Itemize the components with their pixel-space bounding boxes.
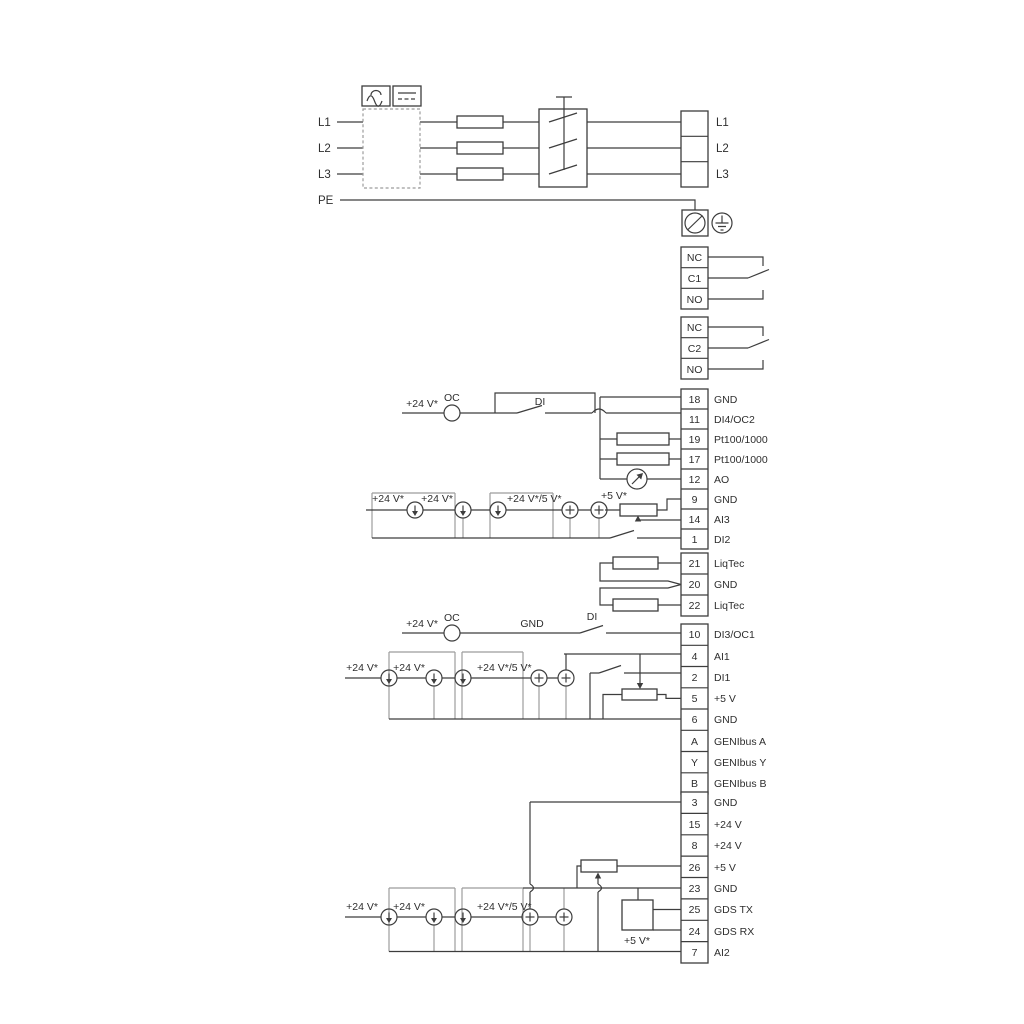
v24-v5-label: +24 V*/5 V* [477,662,532,674]
terminal-no: 26 [689,862,701,874]
terminal-no: 1 [692,534,698,546]
terminal-label: GENIbus A [714,736,766,748]
terminal-label: +24 V [714,819,742,831]
terminal-no: 7 [692,947,698,959]
terminal-no: 10 [689,629,701,641]
terminal-no: 12 [689,474,701,486]
oc-label: OC [444,612,460,624]
oc-terminal-icon [444,625,460,641]
fuse-l3 [457,168,503,180]
relay2-changeover-contact [748,340,769,349]
power-input-label-l3: L3 [318,169,331,181]
ai2-potentiometer [581,860,617,872]
group3-wiring: +24 V* OC GND DI +24 V* +24 V* +24 V*/5 … [345,611,681,719]
terminal-label: LiqTec [714,600,744,612]
terminal-no: 9 [692,494,698,506]
terminal-label: GND [714,714,738,726]
relay2-c2: C2 [688,343,702,355]
di1-switch-contact [599,666,621,674]
power-output-label-l1: L1 [716,117,729,129]
terminal-no: 15 [689,819,701,831]
v24-label: +24 V* [406,398,438,410]
group3-wires [345,633,681,719]
power-terminal-block [681,111,708,187]
terminal-no: 20 [689,579,701,591]
terminal-label: AI2 [714,947,730,959]
power-wires [337,122,695,210]
di3-switch-contact [580,626,603,634]
terminal-no: 4 [692,651,698,663]
relay2-no: NO [687,364,703,376]
v5-label: +5 V* [624,935,650,947]
terminal-label: AI1 [714,651,730,663]
terminal-label: +5 V [714,862,736,874]
terminal-label: DI3/OC1 [714,629,755,641]
terminal-label: GENIbus Y [714,757,766,769]
v24-label: +24 V* [372,493,404,505]
terminal-label: GND [714,797,738,809]
terminal-label: +5 V [714,693,736,705]
rcd-ac-icon [362,86,390,106]
terminal-label: +24 V [714,840,742,852]
terminal-label: Pt100/1000 [714,454,768,466]
v24-v5-label: +24 V*/5 V* [477,901,532,913]
signal-source-icon [556,909,572,925]
terminal-no: 2 [692,672,698,684]
terminal-label: DI2 [714,534,731,546]
v24-label: +24 V* [406,618,438,630]
terminal-no: 24 [689,926,701,938]
power-output-label-l2: L2 [716,143,729,155]
relay-2: NC C2 NO [681,317,769,379]
ai1-potentiometer [622,689,657,700]
liqtec-sensor-1 [613,557,658,569]
wiring-diagram-page: L1 L2 L3 PE L1 L2 L3 NC C1 NO [0,0,1024,1024]
terminal-label: GND [714,494,738,506]
rcd-dc-icon [393,86,421,106]
terminal-no: 5 [692,693,698,705]
terminal-group-2: 21 20 22 LiqTec GND LiqTec [600,553,744,616]
oc-label: OC [444,392,460,404]
v24-label: +24 V* [393,662,425,674]
terminal-no: 6 [692,714,698,726]
power-input-label-l1: L1 [318,117,331,129]
current-source-icon [426,909,442,925]
pt100-sensor-1 [617,433,669,445]
terminal-no: 17 [689,454,701,466]
terminal-no: 11 [689,414,700,426]
v5-label: +5 V* [601,490,627,502]
terminal-no: 23 [689,883,701,895]
current-source-icon [455,670,471,686]
terminal-label: GDS RX [714,926,754,938]
pt100-sensor-2 [617,453,669,465]
terminal-label: Pt100/1000 [714,434,768,446]
power-input-label-pe: PE [318,195,334,207]
relay1-nc: NC [687,252,703,264]
current-source-icon [490,502,506,518]
terminal-no: 18 [689,394,701,406]
v24-label: +24 V* [393,901,425,913]
current-source-icon [455,909,471,925]
ai1-pot-wiper-arrow [637,683,643,689]
current-source-icon [426,670,442,686]
terminal-label: AO [714,474,729,486]
signal-source-icon [562,502,578,518]
power-input-label-l2: L2 [318,143,331,155]
di2-switch-contact [610,531,634,539]
v24-v5-label: +24 V*/5 V* [507,493,562,505]
relay1-no: NO [687,294,703,306]
terminal-no: 14 [689,514,701,526]
terminal-no: 19 [689,434,701,446]
terminal-no: A [691,736,698,748]
terminal-no: B [691,778,698,790]
di-label: DI [535,396,546,408]
liqtec-sensor-2 [613,599,658,611]
terminal-label: AI3 [714,514,730,526]
terminal-label: LiqTec [714,558,744,570]
relay-1: NC C1 NO [681,247,769,309]
terminal-group-1: 18 11 19 17 12 9 14 1 GND DI4/OC2 Pt100/… [681,389,768,549]
signal-source-icon [591,502,607,518]
terminal-no: 25 [689,904,701,916]
relay2-contact-wires [708,327,763,369]
terminal-label: DI1 [714,672,731,684]
terminal-label: DI4/OC2 [714,414,755,426]
fuse-l2 [457,142,503,154]
v24-label: +24 V* [421,493,453,505]
main-switch-box [539,109,587,187]
current-source-icon [455,502,471,518]
terminal-no: 21 [689,558,701,570]
terminal-label: GDS TX [714,904,753,916]
relay1-changeover-contact [748,270,769,279]
group1-wires [366,397,681,538]
wiring-diagram: L1 L2 L3 PE L1 L2 L3 NC C1 NO [0,0,1024,1024]
ai2-pot-wiper-arrow [595,873,601,879]
di-label: DI [587,611,598,623]
v24-label: +24 V* [346,662,378,674]
terminal-label: GENIbus B [714,778,767,790]
current-source-icon [407,502,423,518]
oc-terminal-icon [444,405,460,421]
fuse-l1 [457,116,503,128]
power-section: L1 L2 L3 PE L1 L2 L3 [318,86,732,236]
relay1-contact-wires [708,257,763,299]
terminal-group-4: 3 15 8 26 23 25 24 7 GND +24 V +24 V +5 … [681,792,754,963]
terminal-label: GND [714,394,738,406]
relay1-c1: C1 [688,273,702,285]
terminal-no: 22 [689,600,701,612]
gds-sensor-box [622,900,653,930]
ai3-potentiometer [620,504,657,516]
terminal-label: GND [714,883,738,895]
ao-meter-needle [632,476,640,484]
gnd-label: GND [520,618,544,630]
signal-source-icon [558,670,574,686]
relay2-nc: NC [687,322,703,334]
group1-wiring: DI +24 V* OC +5 V* +24 V* +24 V* +24 V*/… [366,392,681,538]
terminal-no: Y [691,757,698,769]
terminal-no: 8 [692,840,698,852]
terminal-group-3: 10 4 2 5 6 A Y B DI3/OC1 AI1 DI1 +5 V GN… [681,624,767,794]
earth-glyph [716,216,729,231]
emc-filter-box [363,109,420,188]
terminal-label: GND [714,579,738,591]
power-output-label-l3: L3 [716,169,729,181]
terminal-no: 3 [692,797,698,809]
group4-wiring: +5 V* +24 V* +24 V* +24 V*/5 V* [345,802,681,952]
v24-label: +24 V* [346,901,378,913]
signal-source-icon [531,670,547,686]
group1-wire-hop [592,409,606,413]
